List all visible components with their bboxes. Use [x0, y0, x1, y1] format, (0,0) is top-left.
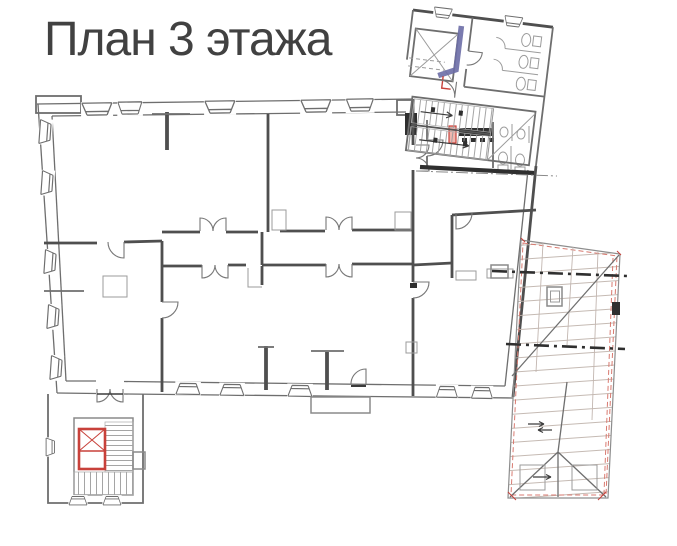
roof-outline [508, 240, 620, 498]
annex-stairwell [45, 389, 145, 506]
wing-elevator-shaft [409, 21, 461, 90]
floorplan-page: План 3 этажа [0, 0, 677, 546]
toilet-icon [500, 127, 508, 137]
wing-wc-room [464, 17, 553, 96]
toilet-icon [521, 33, 532, 47]
toilet-icon [516, 77, 527, 91]
interior-partitions [44, 99, 429, 396]
balcony [311, 369, 370, 413]
roof-plan [491, 238, 627, 500]
floorplan-drawing [0, 0, 677, 546]
annex-elevator-red [79, 429, 105, 469]
upper-right-wing [396, 4, 554, 166]
toilet-icon [518, 55, 529, 69]
